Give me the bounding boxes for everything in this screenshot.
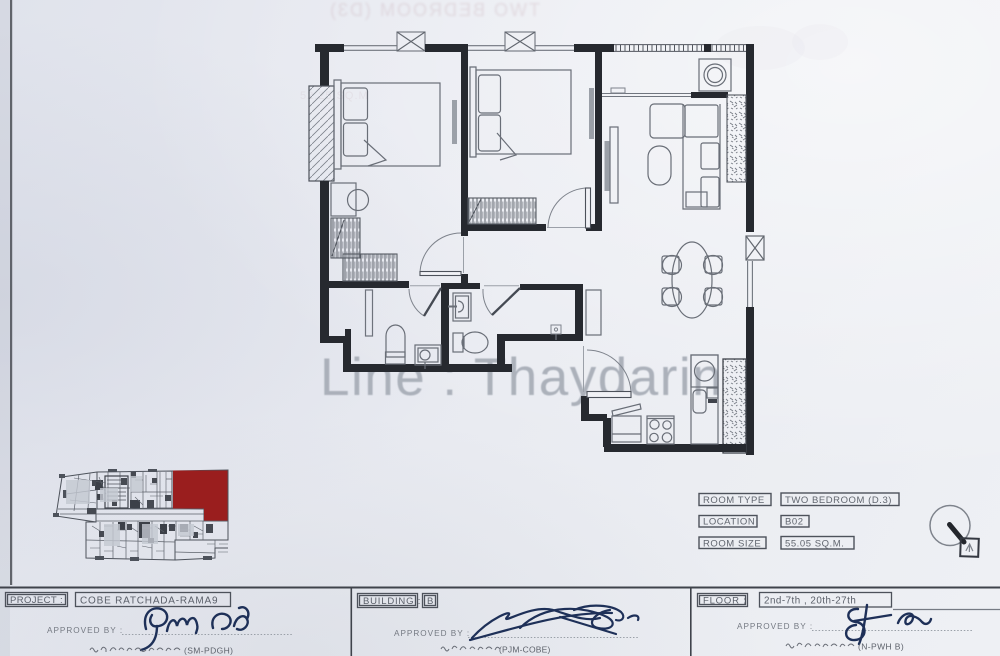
svg-text:TWO BEDROOM (D.3): TWO BEDROOM (D.3) bbox=[785, 495, 892, 506]
svg-text:LOCATION: LOCATION bbox=[703, 517, 755, 528]
svg-text:TWO BEDROOM (D3): TWO BEDROOM (D3) bbox=[328, 0, 540, 20]
svg-text:Line : Thaydarin: Line : Thaydarin bbox=[320, 348, 723, 407]
svg-text:BUILDING :: BUILDING : bbox=[363, 596, 421, 607]
svg-text:PROJECT :: PROJECT : bbox=[10, 595, 63, 606]
svg-text:B: B bbox=[427, 596, 433, 607]
svg-text:B02: B02 bbox=[785, 517, 804, 528]
svg-text:(N-PWH B): (N-PWH B) bbox=[858, 642, 904, 652]
svg-text:APPROVED BY :: APPROVED BY : bbox=[737, 622, 813, 631]
svg-text:(SM-PDGH): (SM-PDGH) bbox=[184, 646, 233, 656]
svg-text:2nd-7th , 20th-27th: 2nd-7th , 20th-27th bbox=[764, 596, 856, 607]
svg-text:APPROVED BY :: APPROVED BY : bbox=[47, 626, 123, 635]
svg-text:55.05 SQ.M.: 55.05 SQ.M. bbox=[785, 538, 844, 549]
svg-text:ROOM SIZE: ROOM SIZE bbox=[703, 538, 761, 549]
svg-text:COBE RATCHADA-RAMA9: COBE RATCHADA-RAMA9 bbox=[80, 596, 218, 607]
svg-text:APPROVED BY :: APPROVED BY : bbox=[394, 629, 470, 638]
svg-text:ROOM TYPE: ROOM TYPE bbox=[703, 495, 765, 506]
svg-text:FLOOR :: FLOOR : bbox=[703, 596, 747, 607]
svg-text:(PJM-COBE): (PJM-COBE) bbox=[499, 645, 551, 655]
